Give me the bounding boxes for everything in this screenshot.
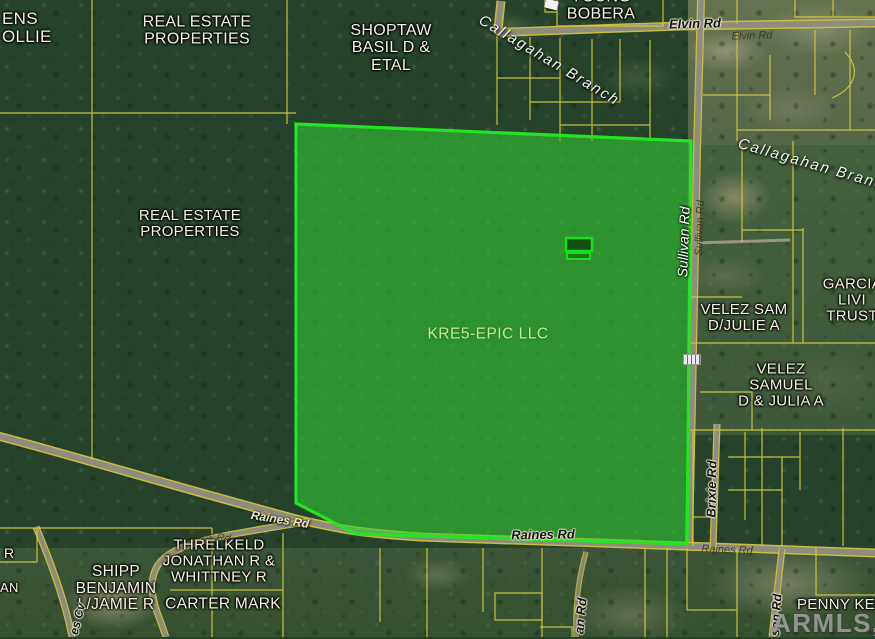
parcel-label-kre5-epic-llc: KRE5-EPIC LLC (427, 327, 548, 344)
parcel-label-ens-ollie: ENS OLLIE (2, 10, 52, 47)
road-label-elvin-rd: Elvin Rd (669, 16, 721, 31)
parcel-label-velez-samuel: VELEZ SAMUEL D & JULIA A (734, 362, 828, 411)
parcel-label-shoptaw: SHOPTAW BASIL D & ETAL (350, 22, 431, 74)
watermark: ARMLS, INC (772, 608, 875, 639)
parcel-label-carter-mark: CARTER MARK (165, 597, 281, 614)
parcel-label-partial-r: R (4, 546, 14, 561)
parcel-label-young-bobera: YOUNG BOBERA (567, 0, 636, 23)
parcel-label-real-estate-properties-top: REAL ESTATE PROPERTIES (143, 14, 252, 49)
road-es-cv (36, 527, 72, 637)
road-label-brixie-rd: Brixie Rd (704, 460, 719, 517)
parcel-label-partial-an: AN (0, 581, 19, 595)
road-label-elvin-rd-faint: Elvin Rd (731, 31, 772, 44)
building-outline (566, 238, 592, 251)
parcel-label-velez-sam: VELEZ SAM D/JULIE A (701, 302, 788, 334)
road-label-raines-rd-faint-right: Raines Rd (701, 544, 753, 558)
road-marker-icon (683, 354, 701, 365)
road-label-raines-rd: Raines Rd (511, 527, 575, 542)
road-label-sullivan-rd-faint: Sullivan Rd (694, 200, 708, 256)
parcel-label-garcia-living-trust: GARCIA LIVI TRUST (823, 277, 875, 326)
parcel-label-real-estate-properties-mid: REAL ESTATE PROPERTIES (139, 208, 241, 240)
parcel-label-threlkeld: THRELKELD JONATHAN R & WHITTNEY R (163, 538, 276, 587)
road-label-sullivan-rd: Sullivan Rd (675, 206, 693, 277)
building-outline (567, 253, 590, 259)
gis-parcel-map[interactable]: { "map": { "watermark": "ARMLS, INC", "c… (0, 0, 875, 637)
